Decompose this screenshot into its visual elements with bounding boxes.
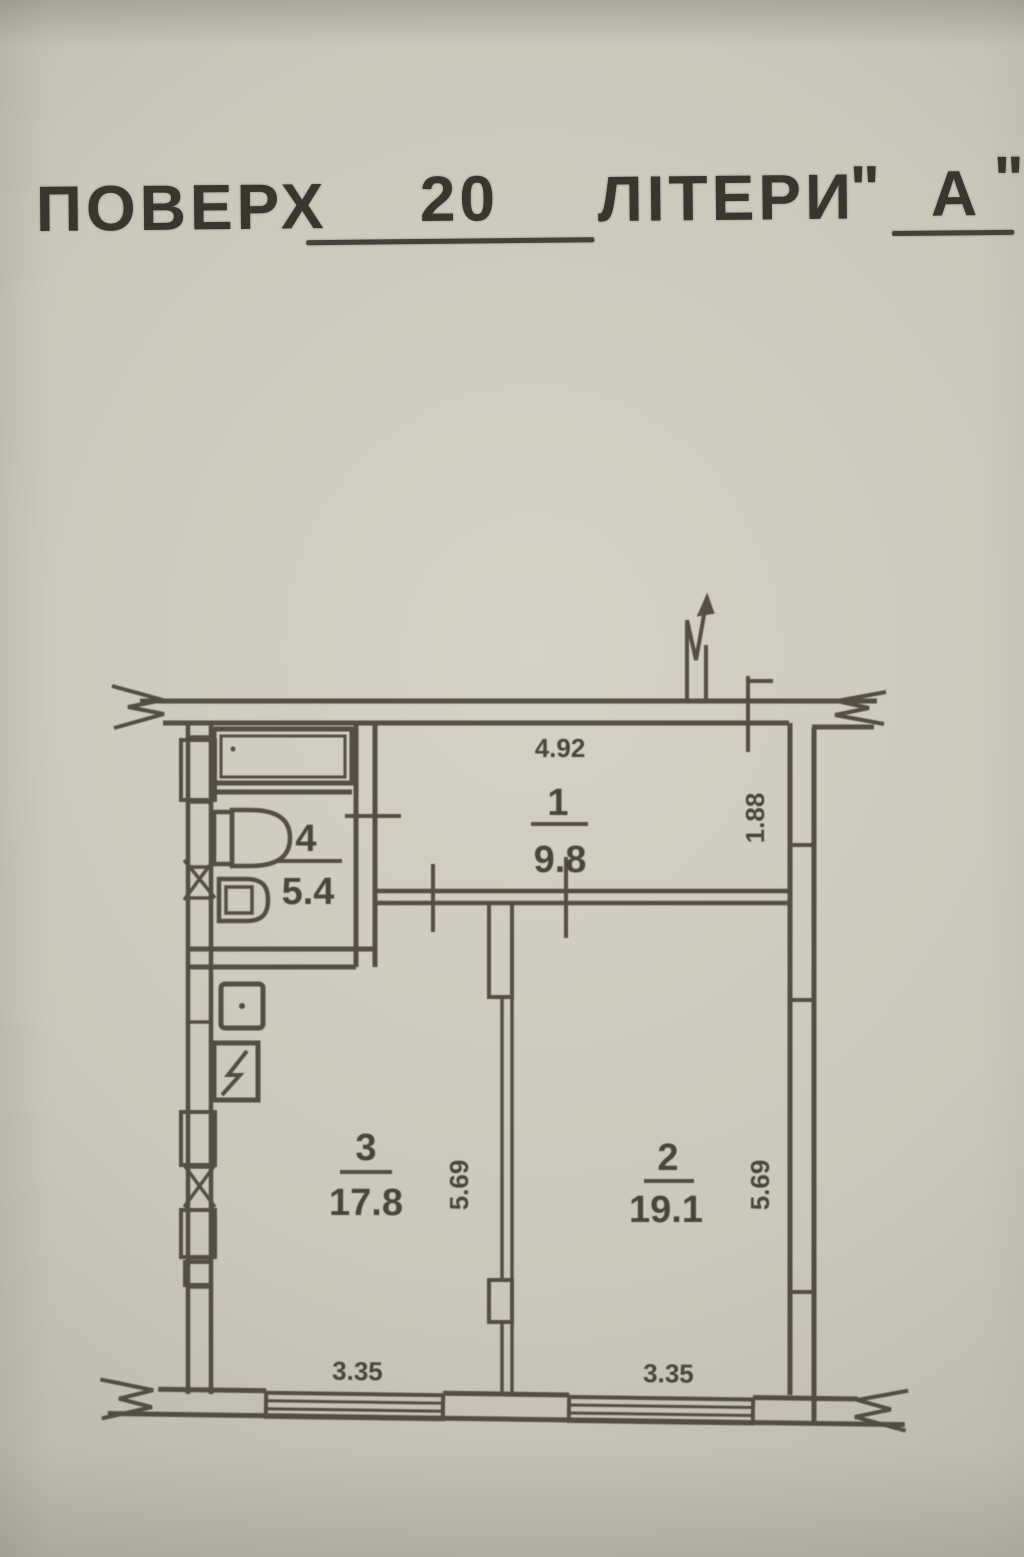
toilet-icon [214,810,290,866]
room-2-depth-dimension: 5.69 [745,1160,775,1211]
room-1-number: 1 [547,782,568,824]
wall-break-top-left [112,686,164,728]
bathtub-tap-icon [231,747,236,752]
room-3-number: 3 [355,1127,376,1169]
lightning-icon [222,1051,247,1095]
room-3-depth-dimension: 5.69 [444,1160,474,1211]
left-wall [181,725,215,1394]
partition-wall [489,903,512,1394]
room-4-number: 4 [295,818,316,860]
room-2-label: 2 19.1 5.69 [629,1137,775,1231]
room-1-width-dimension: 4.92 [535,733,586,763]
electric-panel-icon [214,1043,258,1100]
chute-icon [221,984,263,1028]
window-right-dimension: 3.35 [643,1358,694,1389]
room-1-area: 9.8 [534,839,587,881]
room-1-label: 4.92 1 9.8 [534,733,587,881]
right-wall-dimension: 1.88 [740,793,770,844]
room-3-label: 3 17.8 5.69 [329,1127,474,1224]
right-wall [790,723,814,1421]
floor-plan-document-photo: ПОВЕРХ 20 ЛІТЕРИ " А " [0,0,1024,1557]
wall-break-top-right [835,692,886,724]
bathtub [212,729,352,792]
floor-plan-drawing: 3.35 3.35 [0,0,1024,1557]
window-left-dimension: 3.35 [332,1356,383,1387]
room-3-area: 17.8 [329,1182,403,1224]
dimension-bracket [748,676,773,752]
bottom-wall: 3.35 3.35 [100,1350,909,1430]
top-wall [112,686,886,728]
sink-icon [219,879,268,921]
room-2-area: 19.1 [629,1189,703,1231]
room-2-number: 2 [657,1137,678,1179]
vent-shaft-icon [687,598,712,701]
room-4-area: 5.4 [282,871,335,913]
